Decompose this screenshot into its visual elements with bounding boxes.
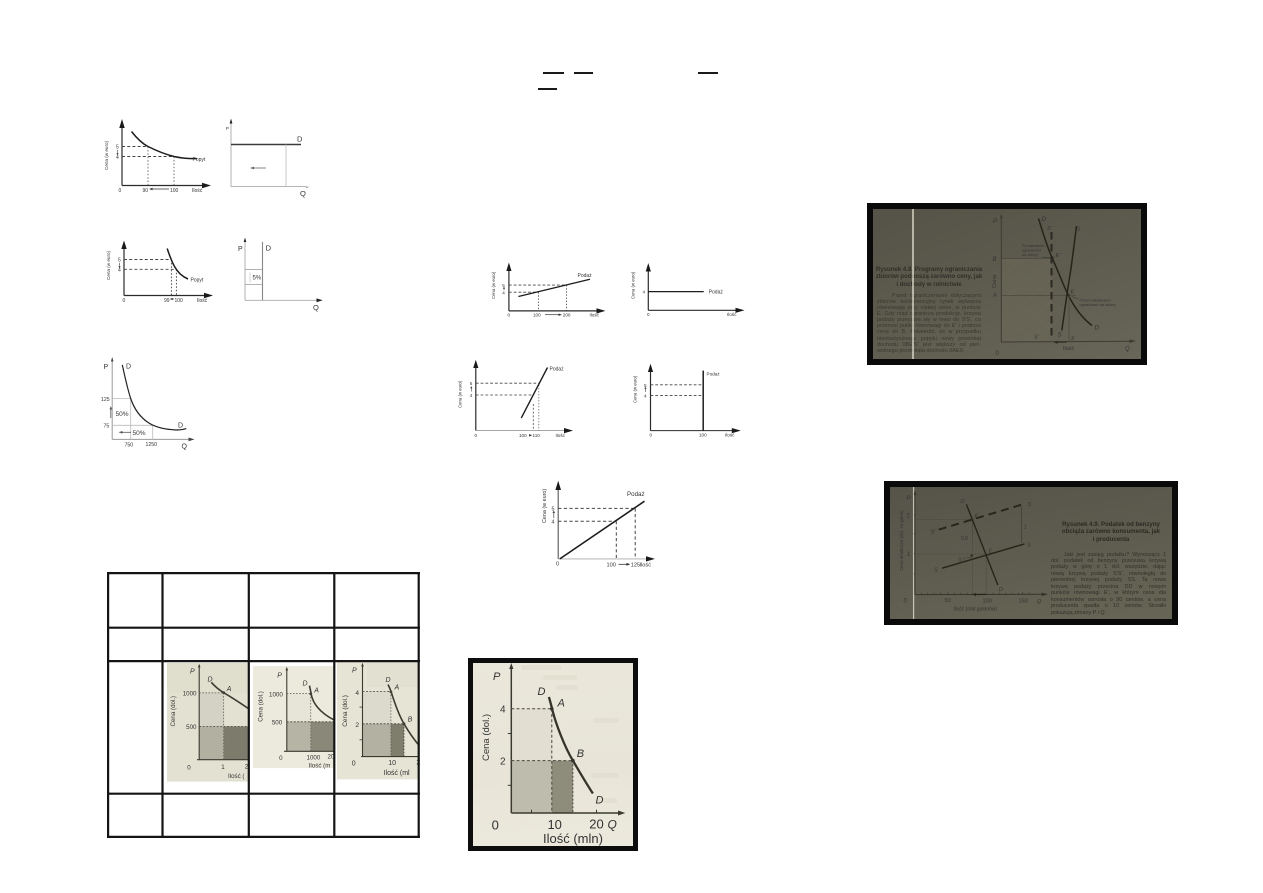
svg-text:99: 99 xyxy=(164,298,170,304)
svg-text:B: B xyxy=(577,748,584,760)
svg-text:Cena (w euro): Cena (w euro) xyxy=(458,380,463,408)
svg-text:P: P xyxy=(993,218,998,225)
svg-text:D: D xyxy=(538,686,546,698)
svg-text:150: 150 xyxy=(1019,599,1028,605)
svg-text:100: 100 xyxy=(983,599,992,605)
svg-text:X: X xyxy=(1070,336,1075,342)
svg-text:Ilość: Ilość xyxy=(556,433,566,438)
svg-text:E': E' xyxy=(1056,253,1062,259)
svg-text:Q: Q xyxy=(182,444,188,451)
svg-text:D: D xyxy=(266,244,272,253)
svg-text:0: 0 xyxy=(650,433,653,438)
svg-text:2: 2 xyxy=(907,514,911,520)
svg-text:D: D xyxy=(1042,216,1047,223)
svg-text:100: 100 xyxy=(699,433,707,438)
svg-text:D: D xyxy=(1095,325,1100,332)
svg-text:Ilość: Ilość xyxy=(725,433,735,438)
svg-text:750: 750 xyxy=(125,443,134,449)
svg-text:Ilość: Ilość xyxy=(590,313,600,318)
svg-text:4: 4 xyxy=(116,155,119,161)
svg-text:Cena (dol.): Cena (dol.) xyxy=(481,714,492,761)
svg-text:S': S' xyxy=(1047,226,1053,232)
svg-text:P: P xyxy=(493,671,501,683)
svg-text:0: 0 xyxy=(492,818,499,833)
svg-text:5%: 5% xyxy=(253,276,262,282)
svg-text:4: 4 xyxy=(502,291,505,296)
svg-text:Popyt: Popyt xyxy=(191,278,204,284)
svg-text:50%: 50% xyxy=(133,430,146,437)
svg-text:Q: Q xyxy=(1125,347,1130,353)
svg-text:D: D xyxy=(999,587,1003,593)
svg-text:100: 100 xyxy=(175,298,184,304)
svg-text:Podaż: Podaż xyxy=(707,372,721,377)
svg-text:Cena (w euro): Cena (w euro) xyxy=(491,271,496,299)
svg-text:1: 1 xyxy=(907,552,911,558)
svg-text:0: 0 xyxy=(508,313,511,318)
svg-text:Q: Q xyxy=(1037,599,1042,605)
svg-text:Cena (w euro): Cena (w euro) xyxy=(106,250,111,280)
svg-text:D: D xyxy=(178,423,183,430)
svg-text:D: D xyxy=(596,795,604,807)
svg-text:110: 110 xyxy=(533,433,541,438)
svg-text:4: 4 xyxy=(500,705,506,716)
svg-text:5: 5 xyxy=(118,258,121,264)
svg-text:A: A xyxy=(557,698,565,710)
svg-text:S': S' xyxy=(1028,502,1034,508)
svg-text:2: 2 xyxy=(500,757,506,768)
svg-text:5: 5 xyxy=(116,145,119,151)
svg-text:0: 0 xyxy=(647,312,650,317)
svg-text:P: P xyxy=(238,246,243,253)
svg-text:0: 0 xyxy=(119,188,122,194)
svg-text:Cena (w euro): Cena (w euro) xyxy=(104,140,109,170)
svg-text:E: E xyxy=(1071,290,1075,296)
svg-text:S: S xyxy=(1027,543,1031,549)
svg-text:Podaż: Podaż xyxy=(627,491,645,498)
svg-text:0,1: 0,1 xyxy=(959,558,966,564)
svg-text:Q: Q xyxy=(313,303,319,312)
svg-text:0,9: 0,9 xyxy=(961,536,968,542)
svg-text:0: 0 xyxy=(904,599,908,605)
svg-text:75: 75 xyxy=(104,424,110,430)
svg-text:Ilość: Ilość xyxy=(1063,346,1075,352)
svg-text:100: 100 xyxy=(607,562,616,568)
svg-text:S': S' xyxy=(931,530,937,536)
svg-text:0: 0 xyxy=(123,298,126,304)
svg-text:Ilość (mld galonów): Ilość (mld galonów) xyxy=(954,607,997,613)
svg-text:100: 100 xyxy=(533,313,541,318)
svg-text:P: P xyxy=(907,496,911,502)
svg-text:1: 1 xyxy=(1024,525,1027,531)
svg-text:Podaż: Podaż xyxy=(550,367,565,373)
svg-text:10: 10 xyxy=(547,817,561,832)
svg-text:0: 0 xyxy=(556,562,559,568)
svg-text:0: 0 xyxy=(475,433,478,438)
svg-text:P: P xyxy=(104,364,109,371)
svg-text:4: 4 xyxy=(552,519,555,525)
svg-text:Cena (w euro): Cena (w euro) xyxy=(631,271,636,299)
svg-text:Podaż: Podaż xyxy=(578,273,593,279)
svg-text:4: 4 xyxy=(643,290,646,295)
svg-text:ograniczeń na zbiory: ograniczeń na zbiory xyxy=(1080,302,1116,307)
svg-text:Ilość: Ilość xyxy=(192,188,203,194)
svg-text:Ilość: Ilość xyxy=(640,562,652,568)
svg-text:S: S xyxy=(934,568,938,574)
svg-text:100: 100 xyxy=(519,433,527,438)
svg-text:P: P xyxy=(226,126,229,131)
svg-text:Ilość: Ilość xyxy=(727,312,737,317)
svg-text:200: 200 xyxy=(563,313,571,318)
svg-text:0: 0 xyxy=(996,351,1000,357)
svg-text:Popyt: Popyt xyxy=(193,157,206,163)
svg-text:Q: Q xyxy=(300,189,306,198)
svg-text:Ilość: Ilość xyxy=(197,298,208,304)
svg-text:4: 4 xyxy=(470,393,473,398)
svg-text:S: S xyxy=(1077,227,1081,233)
svg-text:Cena (w euro): Cena (w euro) xyxy=(542,489,548,523)
svg-text:1250: 1250 xyxy=(146,442,158,448)
svg-text:20: 20 xyxy=(589,817,603,832)
svg-text:Cena detaliczna (dol. za galon: Cena detaliczna (dol. za galon) xyxy=(899,510,904,571)
svg-text:50%: 50% xyxy=(116,411,129,418)
svg-text:A: A xyxy=(992,293,997,299)
svg-text:90: 90 xyxy=(143,188,149,194)
svg-text:50: 50 xyxy=(945,598,951,604)
svg-text:S: S xyxy=(1058,333,1062,339)
svg-text:4: 4 xyxy=(644,394,647,399)
svg-text:Q: Q xyxy=(608,818,617,832)
svg-text:B: B xyxy=(993,257,997,263)
svg-text:D: D xyxy=(961,499,965,505)
svg-text:100: 100 xyxy=(170,188,179,194)
svg-text:5: 5 xyxy=(470,381,473,386)
svg-text:na zbiory: na zbiory xyxy=(1022,252,1038,257)
svg-text:D: D xyxy=(126,364,131,371)
svg-text:Cena: Cena xyxy=(992,274,998,288)
svg-text:Cena (w euro): Cena (w euro) xyxy=(633,375,638,403)
svg-text:Ilość (mln): Ilość (mln) xyxy=(543,831,603,846)
svg-text:D: D xyxy=(297,135,303,144)
svg-text:Podaż: Podaż xyxy=(709,290,724,296)
svg-text:125: 125 xyxy=(101,397,110,403)
